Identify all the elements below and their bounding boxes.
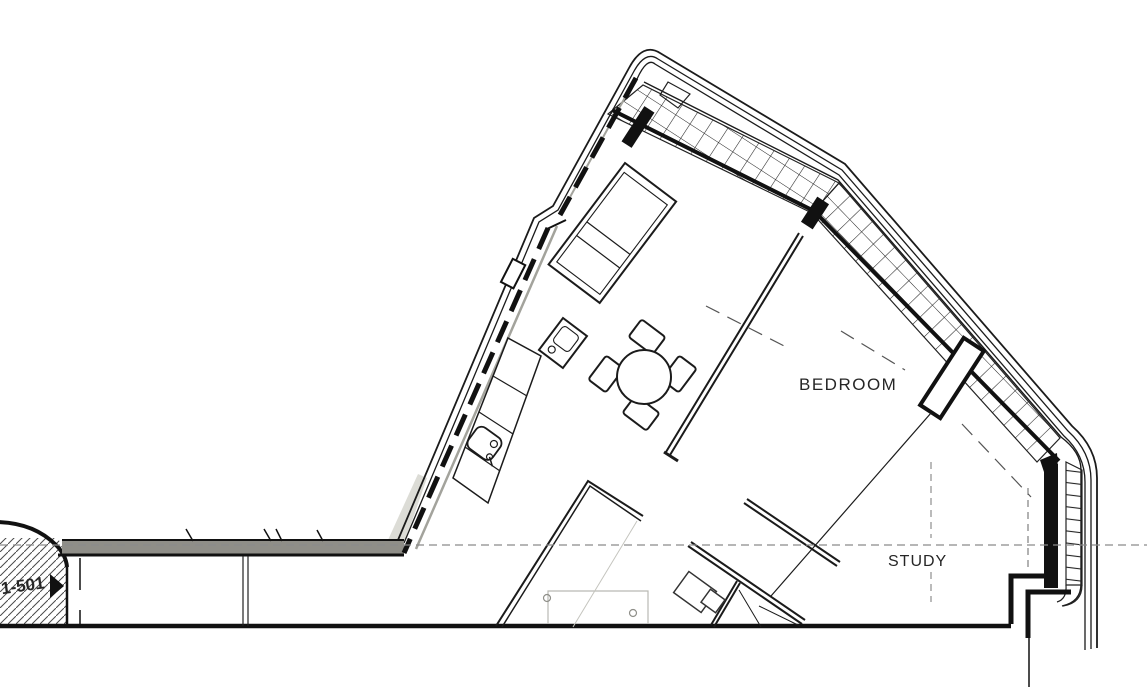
floor-plan-canvas: BEDROOM STUDY 1-501 [0,0,1147,687]
study-label: STUDY [888,553,947,570]
floor-plan-page: BEDROOM STUDY 1-501 [0,0,1147,687]
dining-table [617,350,671,404]
bedroom-label: BEDROOM [799,375,897,394]
